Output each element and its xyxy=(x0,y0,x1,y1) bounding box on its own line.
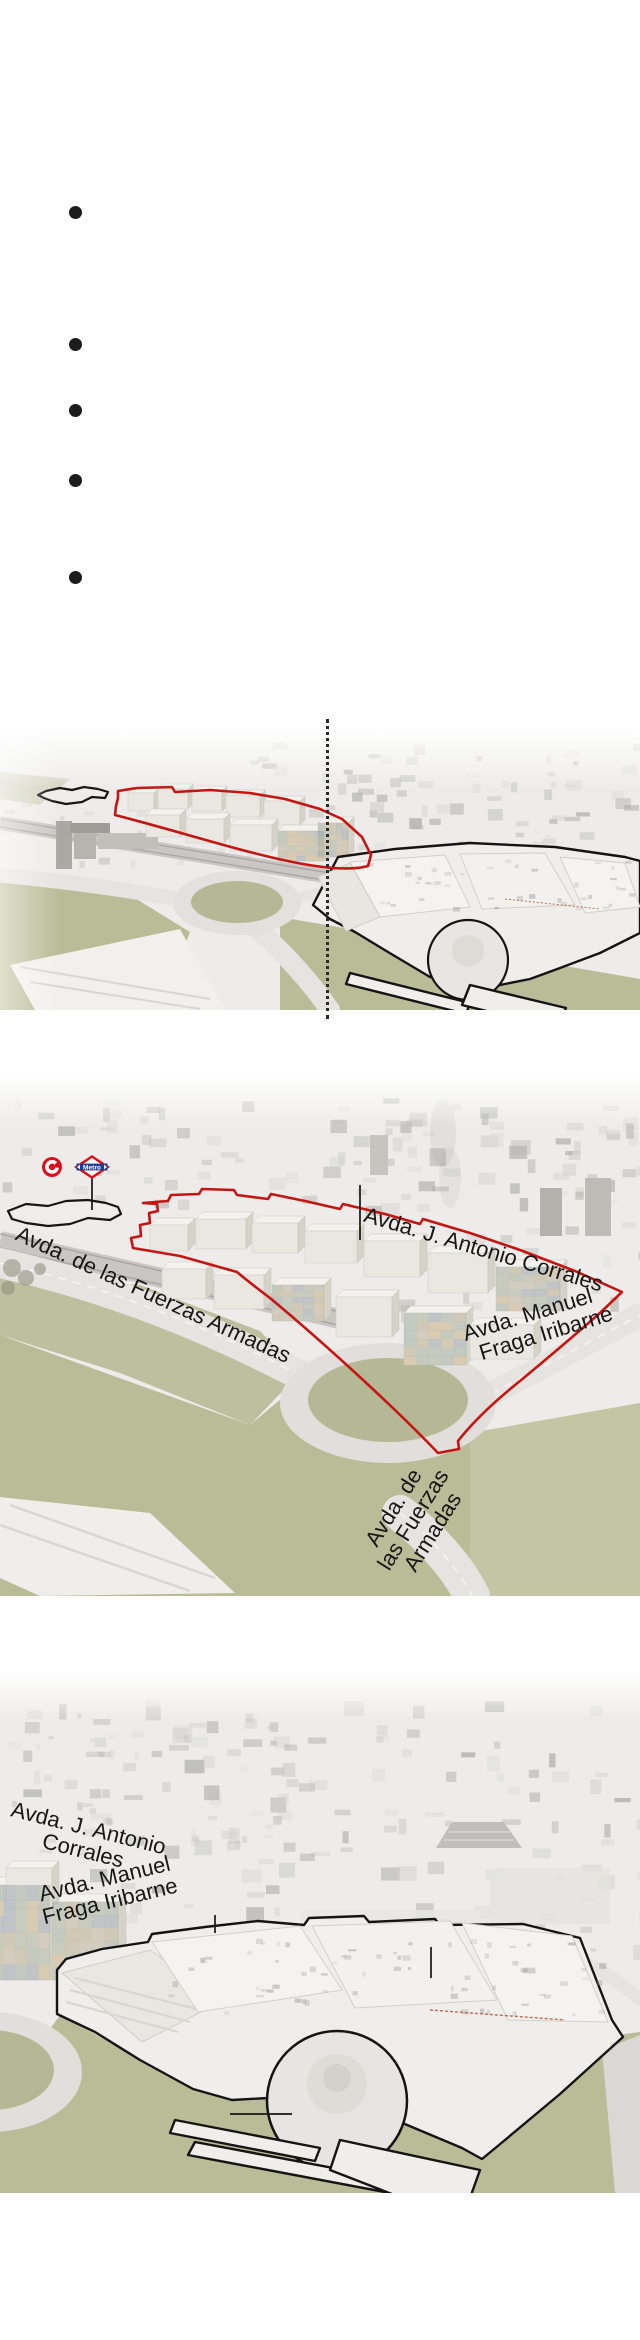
list-bullet xyxy=(69,474,82,487)
aerial-photo-overview xyxy=(0,727,640,1010)
list-bullet xyxy=(69,206,82,219)
metro-madrid-icon: Metro xyxy=(74,1155,110,1179)
dotted-divider-line xyxy=(326,719,329,1019)
list-bullet xyxy=(69,338,82,351)
list-bullet xyxy=(69,571,82,584)
aerial-photo-shopping-centre: Avda. J. Antonio Corrales Avda. Manuel F… xyxy=(0,1670,640,2193)
cercanias-icon xyxy=(42,1157,62,1177)
list-bullet xyxy=(69,404,82,417)
aerial-photo-shopping-centre-art xyxy=(0,1670,640,2193)
metro-logo-text: Metro xyxy=(83,1165,101,1172)
aerial-photo-overview-art xyxy=(0,727,640,1010)
aerial-photo-development: Metro Avda. de las Fuerzas Armadas Avda.… xyxy=(0,1073,640,1596)
infographic-page: { "document": { "background": "#ffffff",… xyxy=(0,0,640,2340)
